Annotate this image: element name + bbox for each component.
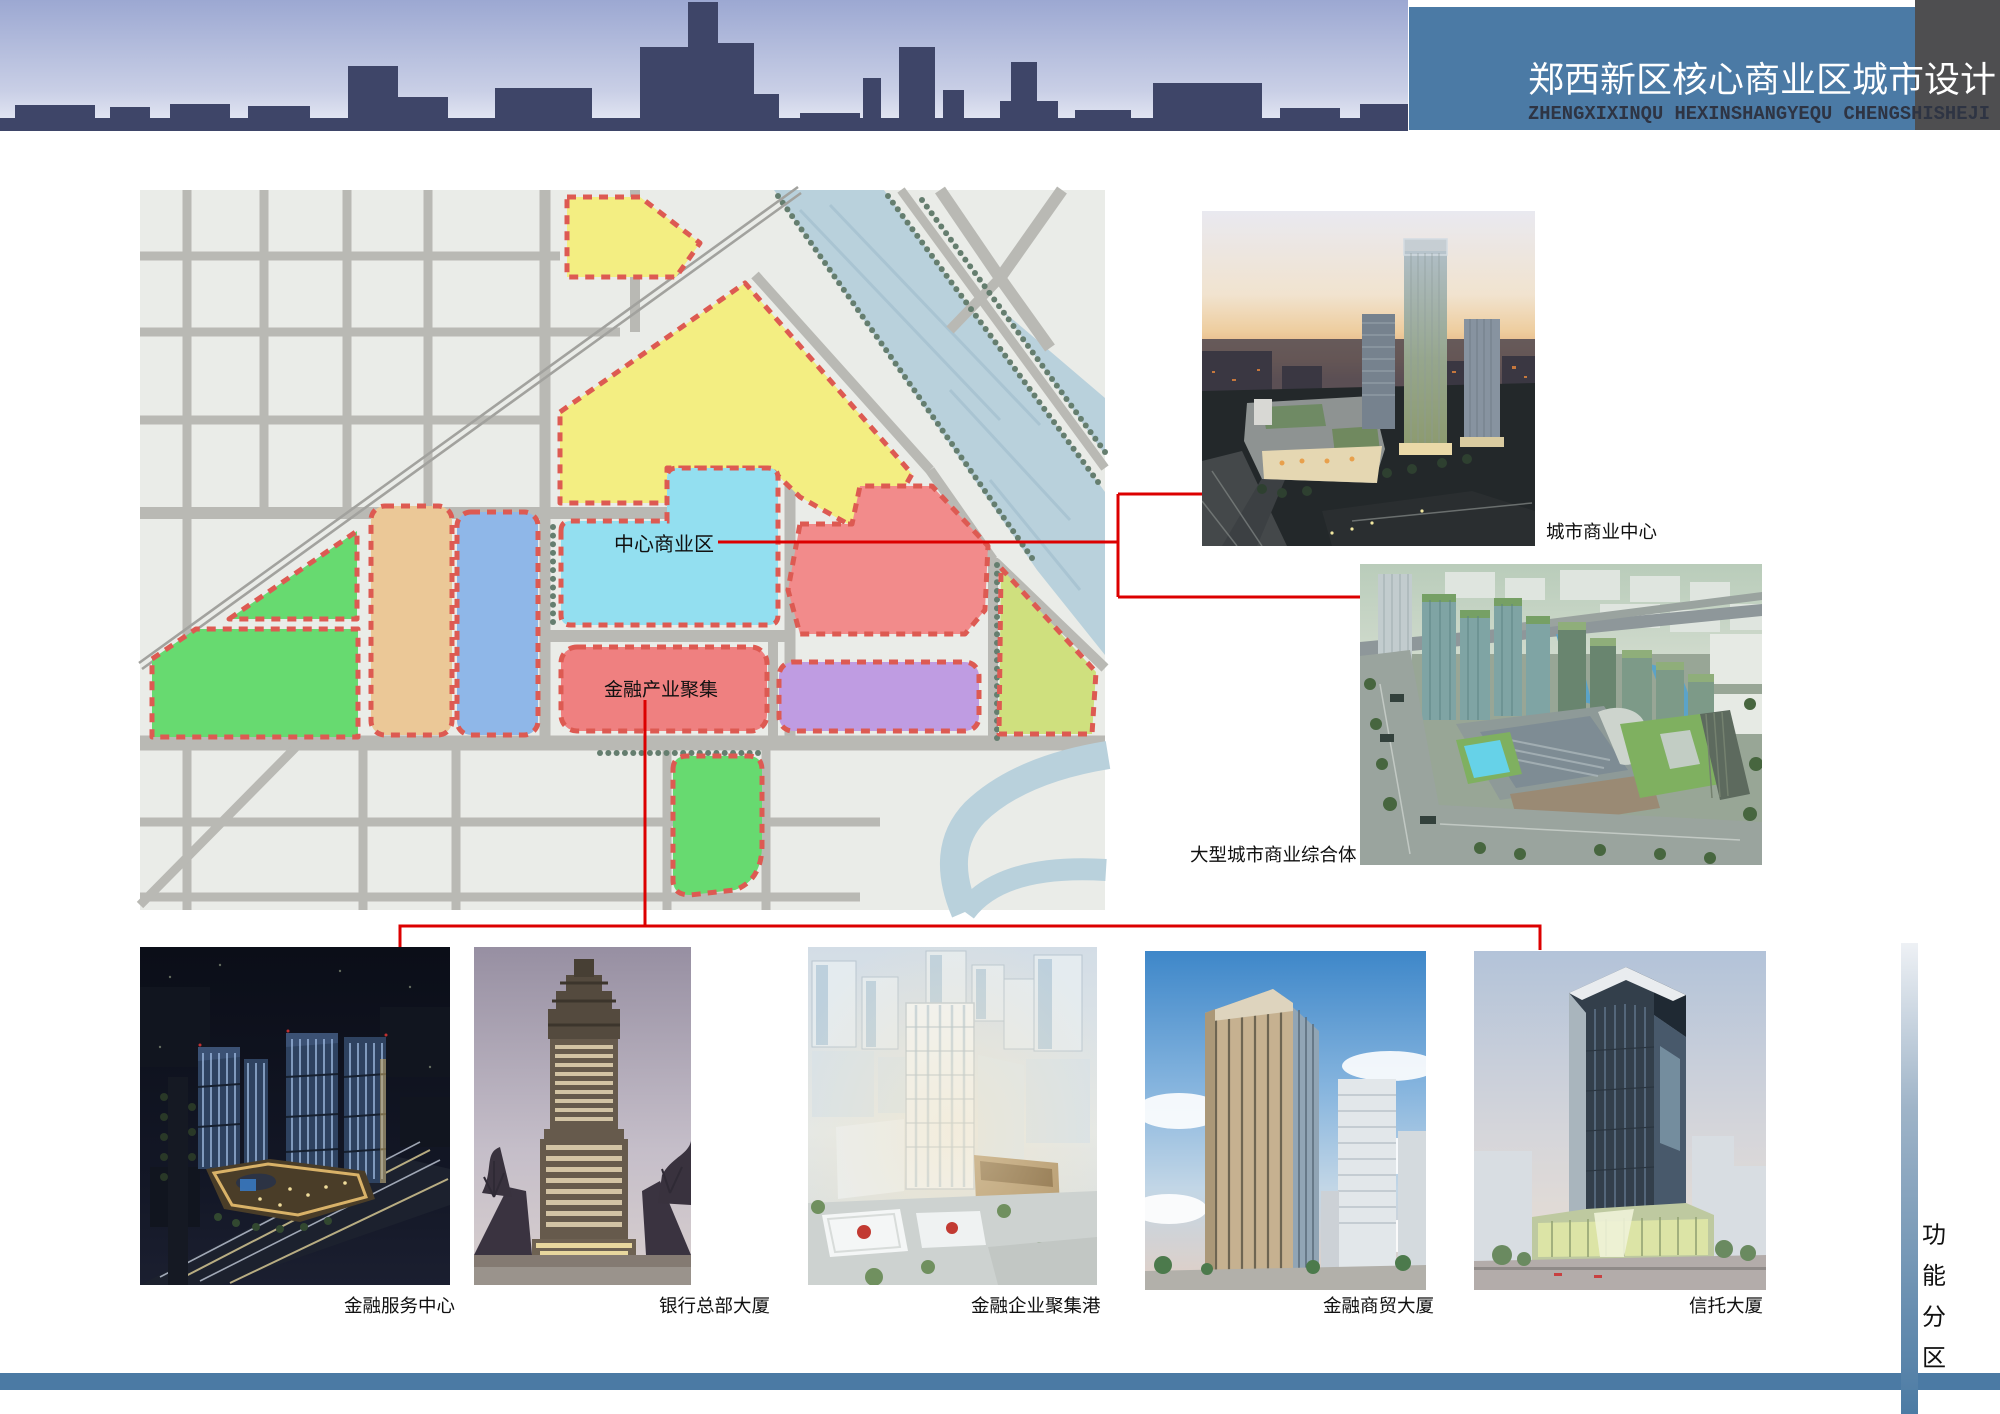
- svg-text:ZHENGXIXINQU HEXINSHANGYEQU CH: ZHENGXIXINQU HEXINSHANGYEQU CHENGSHISHEJ…: [1528, 103, 1990, 125]
